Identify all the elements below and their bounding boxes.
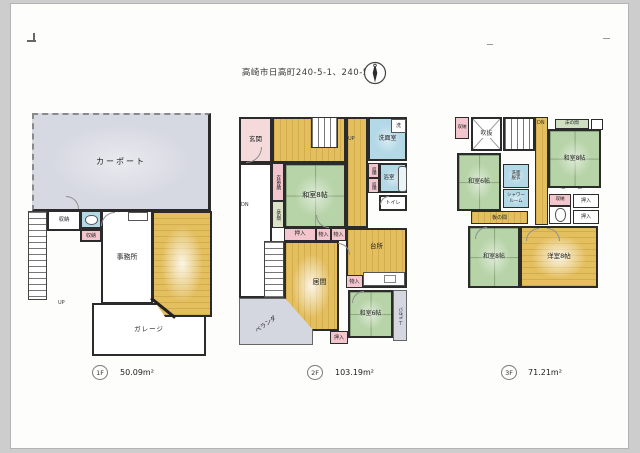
- washer-label: 洗: [396, 123, 401, 129]
- closet-isho-shuno: 衣装収納: [272, 163, 284, 201]
- monoire-2f-c-label: 物入: [349, 279, 359, 285]
- floor-2f-area: 103.19m²: [335, 368, 374, 377]
- fukinuke-label: 吹抜: [480, 130, 492, 137]
- closet-monoire-2f-c: 物入: [346, 275, 363, 288]
- washitsu8-3f-top-label: 和室8帖: [564, 155, 586, 162]
- closet-2f-a-label: 収納: [371, 167, 376, 174]
- staircase-2f-up: [311, 117, 338, 148]
- closet-oshiire-3f-a: 押入: [573, 194, 599, 208]
- floor-2f-badge: 2F: [307, 365, 323, 380]
- ima-label: 居間: [313, 278, 327, 286]
- room-fukinuke: 吹抜: [471, 117, 502, 151]
- up-label-2f: UP: [348, 136, 355, 142]
- washer-box: 洗: [391, 119, 406, 133]
- tokonoma-3f-label: 床の間: [565, 121, 579, 126]
- genkan-label: 玄関: [249, 136, 262, 144]
- north-compass-icon: [362, 60, 388, 86]
- monoire-2f-a-label: 物入: [318, 232, 328, 238]
- floor-2f-badge-label: 2F: [311, 369, 319, 377]
- closet-2f-a: 収納: [368, 163, 379, 178]
- youshitsu8-label: 洋室8帖: [547, 253, 571, 261]
- oshiire-2f-b-label: 押入: [334, 335, 344, 341]
- closet-2f-b-label: 収納: [371, 182, 376, 189]
- staircase-1f: [28, 211, 47, 300]
- crop-mark: [27, 40, 36, 42]
- hall-3f-strip: [535, 117, 548, 225]
- room-toilet-3f: [549, 206, 571, 224]
- isho-shuno-label: 衣装収納: [275, 175, 280, 189]
- monoire-2f-b-label: 物入: [333, 232, 343, 238]
- room-shower: シャワールーム: [503, 189, 529, 208]
- storage-1f-a-label: 収納: [58, 217, 69, 224]
- closet-oshiire-3f-b: 押入: [573, 210, 599, 224]
- room-itanoma: 板の間: [471, 211, 528, 224]
- room-washitsu8-3f-top: 和室8帖: [548, 129, 601, 188]
- oshiire-3f-b-label: 押入: [581, 214, 591, 220]
- floor-1f-badge: 1F: [92, 365, 108, 380]
- room-washitsu8-2f: 和室8帖: [284, 163, 346, 228]
- balcony-label: バルコニー: [397, 307, 402, 325]
- washitsu6-3f-label: 和室6帖: [468, 178, 490, 185]
- dn-label-2f: DN: [241, 202, 249, 208]
- toilet-icon: [85, 215, 98, 225]
- corner-box-3f: [591, 119, 603, 130]
- crop-mark: [487, 44, 493, 45]
- closet-3f-a: 収納: [455, 117, 469, 139]
- staircase-3f: [503, 117, 535, 151]
- daidokoro-label: 台所: [370, 243, 383, 251]
- closet-3f-b-label: 収納: [556, 197, 565, 202]
- closet-monoire-2f-a: 物入: [316, 228, 331, 241]
- tokonoma-2f-label: 床の間: [275, 209, 280, 220]
- room-storage-1f-a: 収納: [47, 210, 81, 231]
- floorplan-page: { "title": "高崎市日高町240-5-1、240-5-2", "com…: [0, 0, 640, 453]
- garage-label: ガレージ: [134, 326, 164, 334]
- oshiire-3f-a-label: 押入: [581, 198, 591, 204]
- up-label-1f: UP: [58, 300, 65, 306]
- closet-monoire-2f-b: 物入: [331, 228, 346, 241]
- tokonoma-2f: 床の間: [272, 201, 284, 228]
- washitsu6-2f-label: 和室6帖: [360, 310, 382, 317]
- senmen-datsui-label: 洗面脱衣: [510, 171, 522, 182]
- carport-label: カーポート: [96, 157, 146, 167]
- crop-mark: [603, 38, 610, 39]
- hall-2f-strip: [346, 117, 368, 228]
- bathtub-icon: [398, 166, 407, 192]
- storage-1f-b-label: 収納: [86, 233, 96, 239]
- floor-3f-badge: 3F: [501, 365, 517, 380]
- senmenshitsu-label: 洗面室: [378, 135, 396, 142]
- toilet-icon: [555, 208, 566, 222]
- closet-oshiire-2f-a: 押入: [284, 228, 316, 241]
- room-senmen-datsui: 洗面脱衣: [503, 164, 529, 188]
- closet-2f-b: 収納: [368, 178, 379, 193]
- crop-mark: [33, 33, 35, 40]
- washitsu8-3f-bottom-label: 和室8帖: [483, 253, 505, 260]
- floor-1f-badge-label: 1F: [96, 369, 104, 377]
- room-washitsu6-3f: 和室6帖: [457, 153, 501, 211]
- kitchen-sink: [384, 275, 396, 283]
- veranda-label: ベランダ: [254, 315, 278, 335]
- room-carport: カーポート: [32, 113, 211, 211]
- office-desk: [128, 212, 148, 221]
- shower-label: シャワールーム: [507, 193, 526, 204]
- tokonoma-3f: 床の間: [555, 119, 589, 129]
- floor-1f-area: 50.09m²: [120, 368, 154, 377]
- dn-label-3f: DN: [537, 120, 545, 126]
- balcony-2f: バルコニー: [393, 290, 407, 341]
- closet-3f-b: 収納: [549, 194, 571, 206]
- staircase-2f-dn: [264, 241, 284, 298]
- room-1f-tatami-unlabeled: [152, 211, 212, 317]
- closet-oshiire-2f-b: 押入: [330, 331, 348, 344]
- floor-3f-badge-label: 3F: [505, 369, 513, 377]
- room-storage-1f-b: 収納: [80, 229, 102, 242]
- oshiire-2f-a-label: 押入: [294, 231, 305, 238]
- room-toilet-1f: [80, 210, 102, 229]
- floor-3f-area: 71.21m²: [528, 368, 562, 377]
- washitsu8-2f-label: 和室8帖: [302, 191, 327, 199]
- yokushitsu-label: 浴室: [383, 175, 394, 182]
- office-label: 事務所: [117, 253, 138, 261]
- closet-3f-a-label: 収納: [458, 125, 467, 130]
- itanoma-label: 板の間: [492, 215, 507, 221]
